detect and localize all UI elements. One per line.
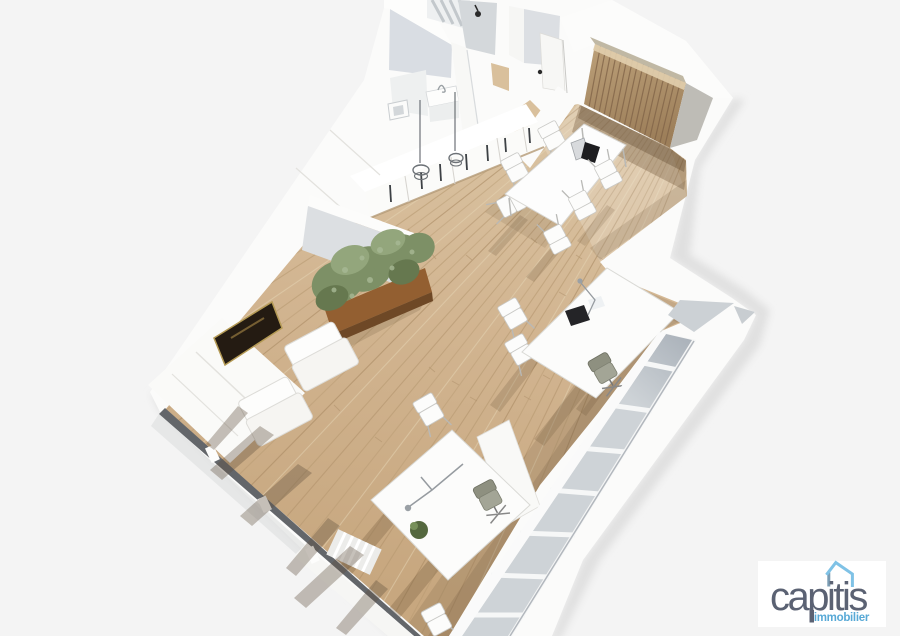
svg-text:immobilier: immobilier xyxy=(814,612,870,624)
